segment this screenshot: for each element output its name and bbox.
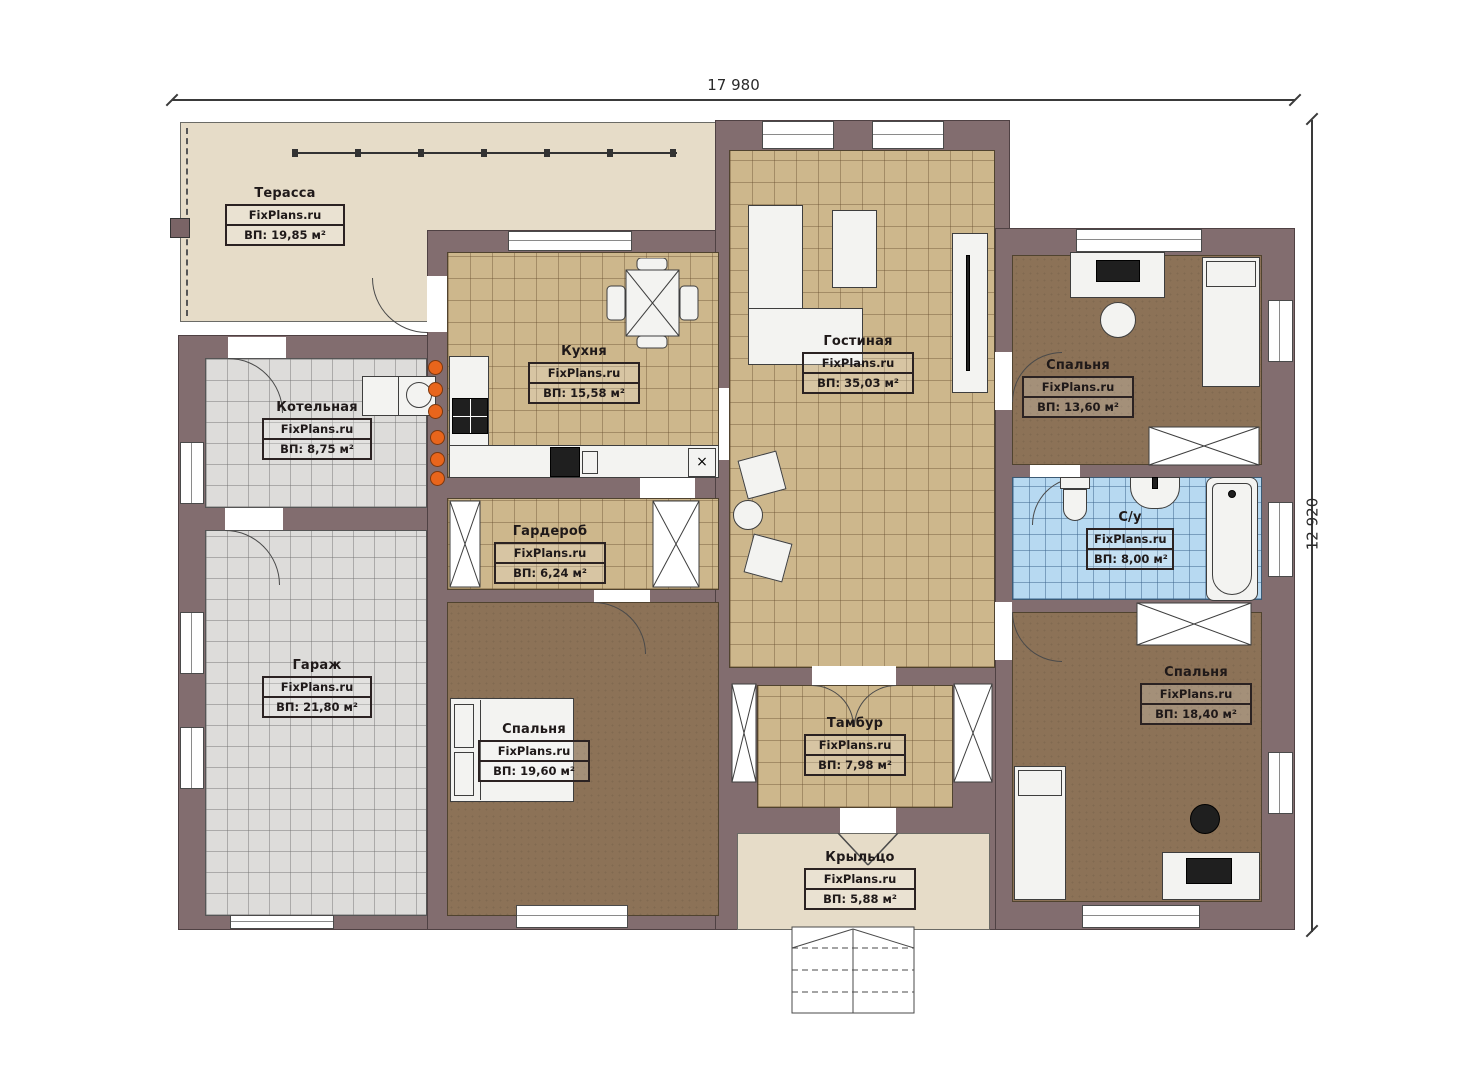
room-area: ВП: 5,88 м² <box>806 890 914 908</box>
window <box>180 612 204 674</box>
entry-steps <box>791 926 915 1014</box>
stove <box>452 398 488 434</box>
room-name: Спальня <box>478 722 590 737</box>
brand-link[interactable]: FixPlans.ru <box>264 420 370 440</box>
brand-link[interactable]: FixPlans.ru <box>227 206 343 226</box>
bathtub-inner <box>1212 483 1252 595</box>
window <box>1268 300 1293 362</box>
computer <box>1096 260 1140 282</box>
room-area: ВП: 8,75 м² <box>264 440 370 458</box>
boiler-unit-divider <box>398 377 399 415</box>
brand-link[interactable]: FixPlans.ru <box>480 742 588 762</box>
window <box>1268 752 1293 814</box>
brand-link[interactable]: FixPlans.ru <box>264 678 370 698</box>
window <box>1268 502 1293 577</box>
room-label-kitchen: Кухня FixPlans.ruВП: 15,58 м² <box>528 344 640 404</box>
brand-link[interactable]: FixPlans.ru <box>1088 530 1172 550</box>
brand-link[interactable]: FixPlans.ru <box>530 364 638 384</box>
room-label-bathroom: С/у FixPlans.ruВП: 8,00 м² <box>1086 510 1174 570</box>
brand-link[interactable]: FixPlans.ru <box>1142 685 1250 705</box>
toilet-bowl <box>1063 489 1087 521</box>
passage-opening <box>719 388 729 460</box>
room-name: Котельная <box>262 400 372 415</box>
brand-link[interactable]: FixPlans.ru <box>804 354 912 374</box>
pillow <box>1018 770 1062 796</box>
kitchen-sink-unit <box>550 447 580 477</box>
room-label-bedroom1: Спальня FixPlans.ruВП: 19,60 м² <box>478 722 590 782</box>
dishwasher: × <box>688 448 716 477</box>
window <box>508 231 632 251</box>
tv <box>966 255 970 371</box>
floor-plan: 17 980 12 920 <box>0 0 1473 1080</box>
room-area: ВП: 19,60 м² <box>480 762 588 780</box>
garage-gate <box>230 915 334 929</box>
window <box>1082 905 1200 928</box>
room-area: ВП: 6,24 м² <box>496 564 604 582</box>
room-name: Кухня <box>528 344 640 359</box>
toilet-tank <box>1060 477 1090 489</box>
printer <box>1186 858 1232 884</box>
brand-link[interactable]: FixPlans.ru <box>806 736 904 756</box>
room-label-terrace: Терасса FixPlans.ruВП: 19,85 м² <box>225 186 345 246</box>
garage-floor <box>205 530 427 916</box>
room-name: Тамбур <box>804 716 906 731</box>
dimension-line-top <box>172 99 1295 101</box>
tv-stand <box>952 233 988 393</box>
room-label-vestibule: Тамбур FixPlans.ruВП: 7,98 м² <box>804 716 906 776</box>
heating-manifold-dot <box>430 471 445 486</box>
room-area: ВП: 21,80 м² <box>264 698 370 716</box>
terrace-pier <box>170 218 190 238</box>
room-name: Спальня <box>1140 665 1252 680</box>
pillow <box>454 752 474 796</box>
heating-manifold-dot <box>428 360 443 375</box>
sink-tap <box>1152 477 1158 489</box>
door-opening <box>1030 465 1080 477</box>
pillow <box>454 704 474 748</box>
room-area: ВП: 35,03 м² <box>804 374 912 392</box>
door-arc <box>372 278 427 333</box>
room-area: ВП: 18,40 м² <box>1142 705 1250 723</box>
heating-manifold-dot <box>430 452 445 467</box>
office-chair <box>1100 302 1136 338</box>
window <box>872 121 944 149</box>
room-label-porch: Крыльцо FixPlans.ruВП: 5,88 м² <box>804 850 916 910</box>
room-name: Гостиная <box>802 334 914 349</box>
dimension-height-label: 12 920 <box>1303 498 1321 551</box>
closet <box>1148 426 1260 466</box>
room-area: ВП: 8,00 м² <box>1088 550 1172 568</box>
closet <box>1136 602 1252 646</box>
heating-manifold-dot <box>430 430 445 445</box>
pillow <box>1206 261 1256 287</box>
door-opening <box>228 337 286 358</box>
double-door-opening <box>812 666 896 685</box>
side-table <box>733 500 763 530</box>
room-name: Крыльцо <box>804 850 916 865</box>
room-name: С/у <box>1086 510 1174 525</box>
room-label-bedroom2: Спальня FixPlans.ruВП: 13,60 м² <box>1022 358 1134 418</box>
kitchen-sink-basin <box>582 451 598 474</box>
dimension-width-label: 17 980 <box>172 76 1295 94</box>
closet <box>953 683 993 783</box>
front-door-opening <box>840 808 896 833</box>
door-opening <box>225 508 283 530</box>
coffee-table <box>832 210 877 288</box>
closet <box>731 683 757 783</box>
room-label-bedroom3: Спальня FixPlans.ruВП: 18,40 м² <box>1140 665 1252 725</box>
window <box>762 121 834 149</box>
window <box>1076 229 1202 252</box>
room-label-garage: Гараж FixPlans.ruВП: 21,80 м² <box>262 658 372 718</box>
door-opening <box>594 590 650 602</box>
room-name: Гардероб <box>494 524 606 539</box>
dining-set <box>605 258 700 350</box>
window <box>180 727 204 789</box>
passage-opening <box>640 478 695 498</box>
closet <box>652 500 700 588</box>
terrace-railing-posts <box>292 149 677 157</box>
room-area: ВП: 13,60 м² <box>1024 398 1132 416</box>
room-area: ВП: 15,58 м² <box>530 384 638 402</box>
heating-manifold-dot <box>428 382 443 397</box>
window <box>516 905 628 928</box>
room-name: Терасса <box>225 186 345 201</box>
window <box>180 442 204 504</box>
room-label-boiler: Котельная FixPlans.ruВП: 8,75 м² <box>262 400 372 460</box>
room-name: Гараж <box>262 658 372 673</box>
room-area: ВП: 19,85 м² <box>227 226 343 244</box>
room-name: Спальня <box>1022 358 1134 373</box>
door-opening <box>995 602 1012 660</box>
room-label-wardrobe: Гардероб FixPlans.ruВП: 6,24 м² <box>494 524 606 584</box>
brand-link[interactable]: FixPlans.ru <box>1024 378 1132 398</box>
room-area: ВП: 7,98 м² <box>806 756 904 774</box>
closet <box>449 500 481 588</box>
heating-manifold-dot <box>428 404 443 419</box>
brand-link[interactable]: FixPlans.ru <box>806 870 914 890</box>
bathtub-drain <box>1228 490 1236 498</box>
plant <box>1190 804 1220 834</box>
door-opening <box>995 352 1012 410</box>
brand-link[interactable]: FixPlans.ru <box>496 544 604 564</box>
door-opening <box>427 276 447 332</box>
room-label-living: Гостиная FixPlans.ruВП: 35,03 м² <box>802 334 914 394</box>
